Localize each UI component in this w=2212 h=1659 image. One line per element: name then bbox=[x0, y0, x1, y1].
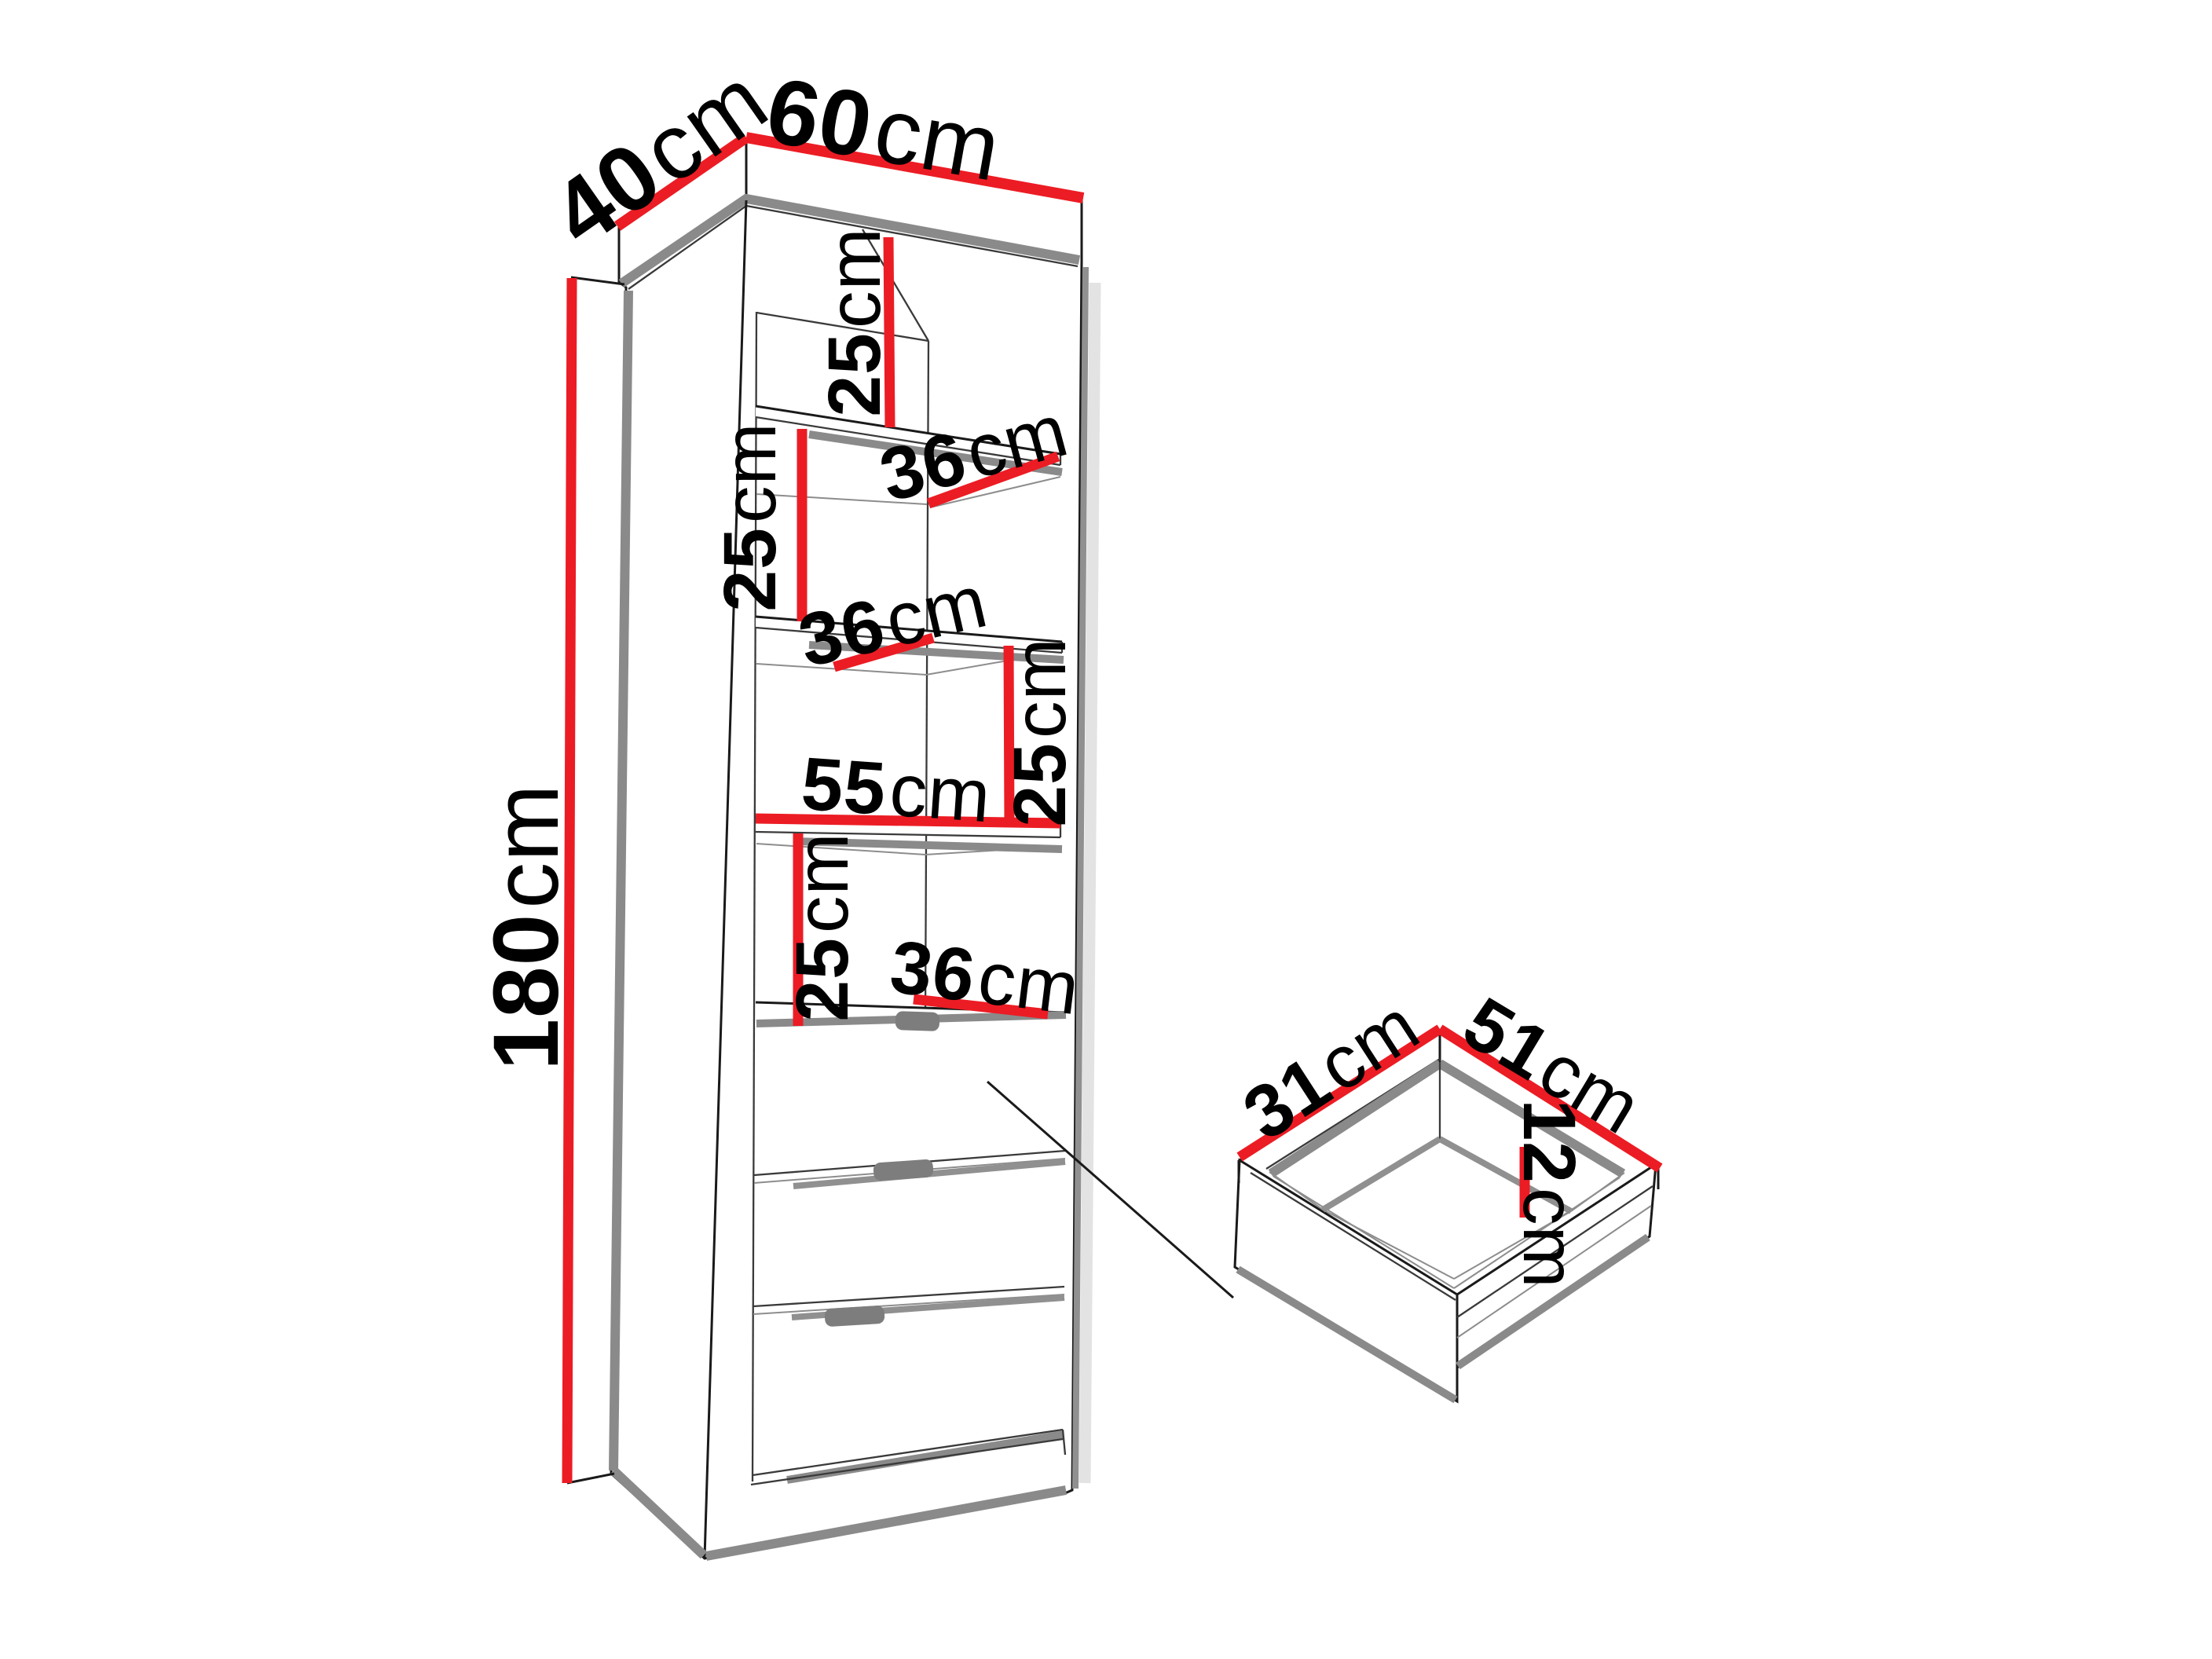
dim-label-25cm-3: 25cm bbox=[998, 637, 1082, 826]
dim-label-12cm: 12cm bbox=[1507, 1099, 1591, 1288]
height-dim-tick-top bbox=[571, 277, 624, 284]
drawer-handle-notch bbox=[824, 1306, 884, 1328]
dim-label-55cm: 55cm bbox=[799, 742, 994, 839]
height-dim-tick-bottom bbox=[567, 1474, 614, 1483]
drawer-handle-notch bbox=[895, 1011, 940, 1031]
dim-label-25cm-1: 25cm bbox=[813, 227, 896, 416]
furniture-dimension-diagram: 40cm 60cm 180cm 25cm 25cm 25cm 25cm 36cm… bbox=[0, 0, 2212, 1659]
diagram-stage: 40cm 60cm 180cm 25cm 25cm 25cm 25cm 36cm… bbox=[0, 0, 2212, 1659]
dim-label-25cm-2: 25cm bbox=[709, 422, 792, 611]
dim-label-180cm: 180cm bbox=[474, 783, 578, 1070]
dim-label-25cm-4: 25cm bbox=[781, 832, 864, 1021]
